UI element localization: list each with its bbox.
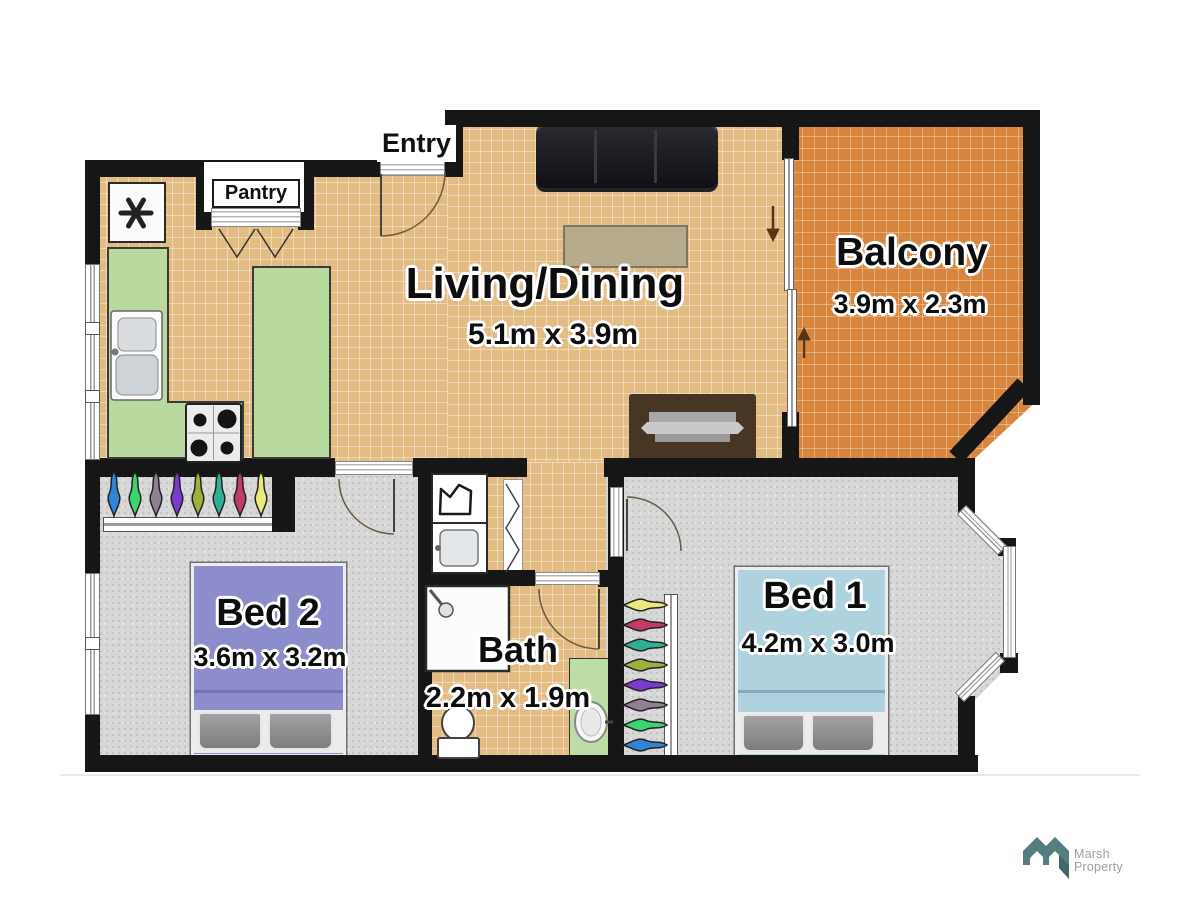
living-room-dims: 5.1m x 3.9m — [413, 320, 693, 350]
balcony-dims: 3.9m x 2.3m — [810, 291, 1010, 318]
wall-segment — [418, 458, 432, 762]
balcony-sliding-door-panel — [784, 158, 794, 291]
wall-segment — [85, 755, 978, 772]
bath-door-threshold — [535, 572, 600, 585]
floor-plan: Entry Pantry Living/Dining 5.1m x 3.9m B… — [0, 0, 1200, 900]
wall-segment — [782, 127, 799, 160]
bed2-dims: 3.6m x 3.2m — [150, 644, 390, 671]
logo-wordmark: Marsh Property — [1074, 848, 1123, 874]
pantry-label-box: Pantry — [212, 179, 300, 208]
entry-label: Entry — [382, 128, 451, 159]
bed1-dims: 4.2m x 3.0m — [698, 630, 938, 657]
sofa-cushion-divider — [654, 130, 657, 183]
wall-segment — [85, 458, 335, 477]
fridge — [108, 182, 166, 243]
wall-segment — [272, 458, 295, 532]
pantry-label: Pantry — [225, 182, 287, 205]
entry-threshold — [380, 161, 445, 176]
pillow — [268, 712, 333, 750]
bed2-door-threshold — [335, 461, 413, 475]
wall-segment — [425, 570, 535, 586]
sofa — [536, 124, 718, 192]
tv — [641, 422, 744, 434]
laundry-door-track — [503, 479, 523, 572]
bed-fold-line — [738, 690, 885, 693]
tv-unit — [629, 394, 756, 460]
bed2-wardrobe-rail — [103, 517, 275, 532]
window-mullion — [85, 637, 100, 650]
balcony-label: Balcony — [812, 233, 1012, 272]
pantry-shelf — [211, 208, 301, 227]
window-mullion — [85, 322, 100, 335]
wall-segment — [1023, 110, 1040, 405]
marsh-property-logo-icon — [1023, 837, 1069, 879]
pillow — [811, 714, 875, 752]
bed2-label: Bed 2 — [168, 594, 368, 632]
bed1-wardrobe-rail — [664, 594, 678, 758]
bed1-door-threshold — [610, 487, 623, 557]
bed1-label: Bed 1 — [715, 577, 915, 615]
bath-label: Bath — [418, 632, 618, 668]
living-room-label: Living/Dining — [345, 262, 745, 306]
window-mullion — [85, 390, 100, 403]
pillow — [198, 712, 262, 750]
bath-dims: 2.2m x 1.9m — [388, 684, 628, 713]
wall-segment — [445, 110, 1040, 127]
page-divider-line — [60, 774, 1140, 776]
pillow — [742, 714, 805, 752]
tv — [655, 434, 730, 442]
wall-segment-bay — [958, 696, 975, 758]
kitchen-window — [85, 264, 100, 460]
balcony-sliding-door-panel — [787, 289, 797, 427]
bay-window-right — [1003, 546, 1016, 658]
sofa-cushion-divider — [594, 130, 597, 183]
tv — [649, 412, 736, 422]
bed-fold-line — [194, 690, 343, 693]
logo-line2: Property — [1074, 861, 1123, 874]
entry-label-box: Entry — [377, 125, 456, 162]
